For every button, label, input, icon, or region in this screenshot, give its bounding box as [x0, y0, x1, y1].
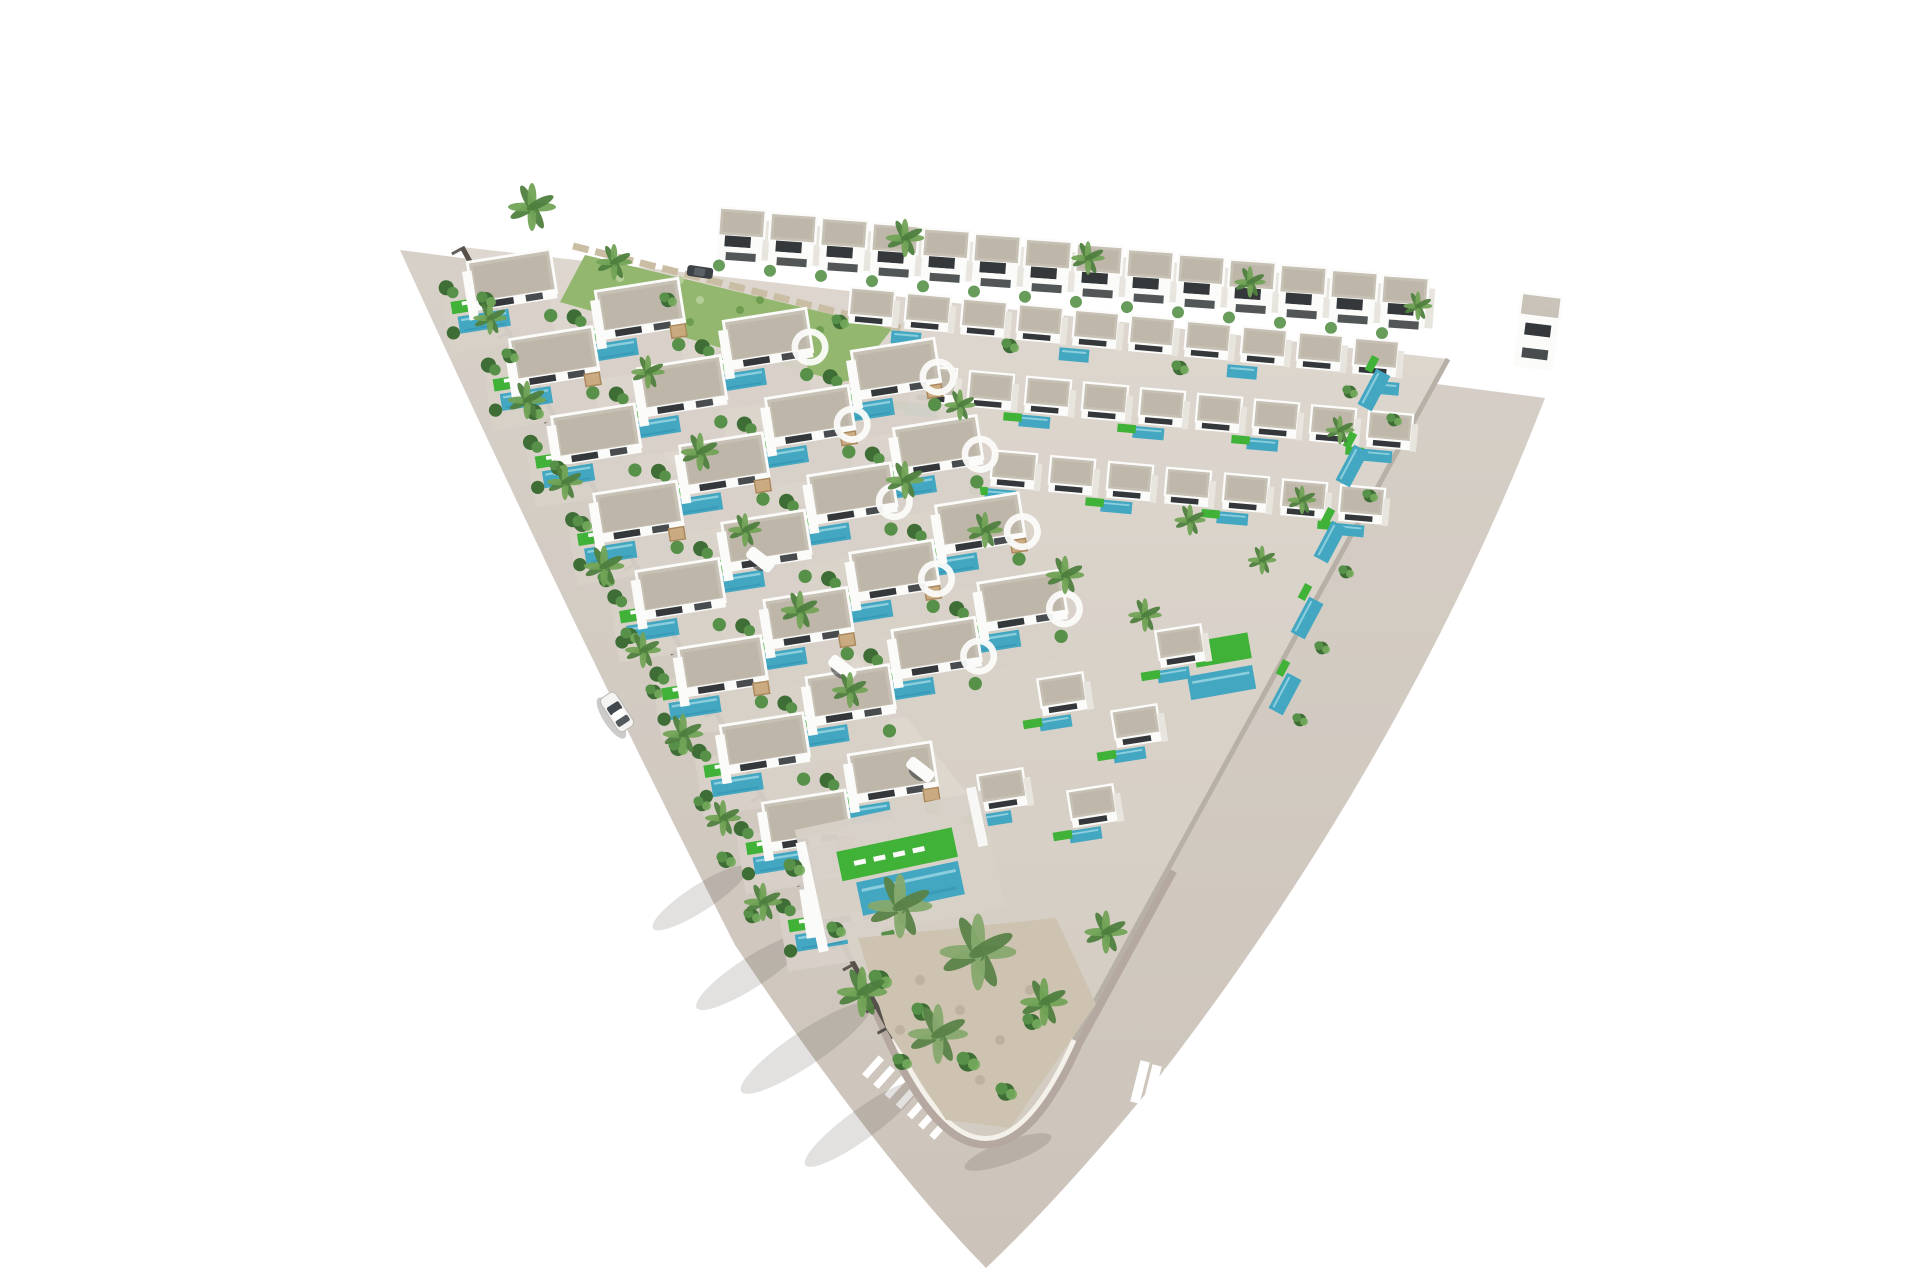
villa-shrub [1172, 306, 1185, 319]
villa-part [722, 212, 761, 235]
palm-crown [797, 607, 803, 613]
shrub-mass [501, 348, 511, 358]
garden-plant [686, 318, 694, 326]
villa-part [1189, 325, 1227, 348]
two-storey-villa [1121, 249, 1181, 317]
shrub-mass [996, 1083, 1008, 1095]
two-storey-villa [968, 233, 1028, 301]
two-storey-villa [1325, 270, 1385, 338]
villa-part [926, 232, 965, 255]
row-villa [1240, 327, 1293, 368]
shrub-mass [1370, 494, 1378, 502]
villa-shrub [917, 280, 930, 293]
gravel-patch [995, 1035, 1005, 1045]
villa-part [824, 222, 863, 245]
shrub-mass [1010, 343, 1019, 352]
shrub-mass [1300, 718, 1308, 726]
row-villa [960, 299, 1013, 340]
shrub-mass [510, 353, 519, 362]
row-villa [1164, 468, 1217, 509]
pool-part [1226, 364, 1257, 380]
garden-plant [696, 296, 704, 304]
shrub-mass [693, 796, 703, 806]
villa-shrub [815, 269, 828, 282]
villa-part [853, 291, 891, 314]
villa-part [1133, 319, 1171, 342]
villa-part [995, 454, 1033, 477]
row-villa [1128, 315, 1181, 356]
palm-crown [958, 403, 963, 408]
shrub-mass [1001, 338, 1011, 348]
two-storey-villa [1223, 259, 1283, 327]
villa-part [1029, 381, 1067, 404]
palm-crown [1188, 518, 1193, 523]
pool-part [1058, 347, 1089, 363]
shrub-mass [717, 852, 728, 863]
palm-crown [1103, 929, 1109, 935]
villa-part [1085, 497, 1104, 507]
row-villa [1184, 321, 1237, 362]
palm-crown [1338, 428, 1342, 432]
villa-part [1021, 308, 1059, 331]
villa-part [1183, 282, 1210, 295]
palm-crown [680, 731, 686, 737]
palm-crown [934, 1030, 943, 1039]
shrub-mass [902, 1059, 912, 1069]
shrub-mass [840, 319, 849, 328]
palm-crown [1041, 999, 1048, 1006]
two-storey-villa [713, 207, 773, 275]
row-villa [1195, 394, 1248, 435]
shrub-mass [477, 292, 488, 303]
shrub-mass [1180, 365, 1189, 374]
shrub-mass [1032, 1019, 1042, 1029]
villa-part [1132, 277, 1159, 290]
villa-part [909, 297, 947, 320]
palm-crown [858, 988, 865, 995]
palm-crown [611, 259, 616, 264]
villa-part [724, 235, 751, 248]
shrub-mass [621, 628, 632, 639]
site-render [0, 0, 1920, 1280]
villa-shrub [713, 259, 726, 272]
palm-crown [972, 946, 983, 957]
palm-crown [1260, 558, 1264, 562]
villa-shrub [1121, 301, 1134, 314]
palm-crown [1143, 613, 1148, 618]
villa-part [1086, 386, 1124, 409]
row-villa [848, 287, 901, 328]
shrub-mass [573, 516, 584, 527]
villa-part [1117, 423, 1136, 433]
shrub-mass [836, 927, 846, 937]
gravel-patch [955, 1005, 965, 1015]
shrub-mass [1362, 489, 1371, 498]
two-storey-villa [917, 228, 977, 296]
shrub-mass [582, 521, 592, 531]
shrub-mass [702, 801, 711, 810]
villa-part [1201, 509, 1220, 519]
palm-crown [562, 479, 567, 484]
shrub-mass [1322, 646, 1330, 654]
shrub-mass [893, 1054, 904, 1065]
shrub-mass [968, 1058, 980, 1070]
villa-shrub [1019, 290, 1032, 303]
palm-crown [1416, 304, 1420, 308]
villa-part [773, 217, 812, 240]
two-storey-villa [1376, 275, 1436, 343]
garden-plant [756, 296, 764, 304]
villa-part [965, 303, 1003, 326]
aerial-render-canvas [0, 0, 1920, 1280]
palm-crown [640, 647, 645, 652]
villa-part [1030, 267, 1057, 280]
villa-part [1283, 269, 1322, 292]
villa-part [1130, 253, 1169, 276]
shrub-mass [957, 1052, 970, 1065]
gravel-patch [915, 975, 925, 985]
car-roof [694, 267, 706, 276]
row-villa [1296, 332, 1349, 373]
gravel-patch [895, 1025, 905, 1035]
gravel-patch [975, 1075, 985, 1085]
villa-part [1077, 314, 1115, 337]
villa-part [1111, 466, 1149, 489]
shrub-mass [668, 297, 677, 306]
villa-part [1285, 293, 1312, 306]
villa-part [1028, 243, 1067, 266]
courtyard-pool [1226, 364, 1257, 380]
shrub-mass [1350, 390, 1358, 398]
villa-part [775, 241, 802, 254]
palm-crown [1300, 498, 1304, 502]
palm-crown [697, 449, 703, 455]
shrub-mass [1386, 413, 1395, 422]
palm-crown [720, 815, 725, 820]
villa-part [1334, 274, 1373, 297]
palm-crown [524, 397, 530, 403]
shrub-mass [654, 689, 663, 698]
villa-shrub [1325, 321, 1338, 334]
palm-crown [982, 527, 987, 532]
shrub-mass [831, 314, 841, 324]
villa-shrub [1274, 316, 1287, 329]
villa-part [1336, 298, 1363, 311]
shrub-mass [659, 292, 669, 302]
palm-crown [760, 899, 766, 905]
villa-part [1053, 460, 1091, 483]
palm-crown [1248, 280, 1253, 285]
shrub-mass [1342, 385, 1351, 394]
courtyard-pool [1058, 347, 1089, 363]
palm-crown [1062, 572, 1068, 578]
palm-crown [847, 687, 852, 692]
two-storey-villa [1019, 238, 1079, 306]
palm-crown [743, 528, 748, 533]
villa-shrub [1376, 327, 1389, 340]
villa-part [1257, 404, 1295, 427]
two-storey-villa [1274, 264, 1334, 332]
two-storey-villa [764, 212, 824, 280]
palm-tree [508, 183, 556, 231]
villa-part [1301, 336, 1339, 359]
shrub-mass [1023, 1014, 1034, 1025]
give-way-marking [1440, 374, 1449, 382]
villa-part [1200, 398, 1238, 421]
row-villa [1072, 310, 1125, 351]
entrance-building [1513, 293, 1562, 371]
villa-part [1181, 258, 1220, 281]
shrub-mass [784, 859, 796, 871]
shrub-mass [1292, 713, 1301, 722]
villa-part [1143, 392, 1181, 415]
villa-part [1227, 478, 1265, 501]
villa-part [977, 238, 1016, 261]
villa-part [972, 375, 1010, 398]
palm-crown [902, 235, 908, 241]
shrub-mass [1171, 360, 1181, 370]
palm-crown [902, 477, 908, 483]
row-villa [904, 293, 957, 334]
shrub-mass [1338, 565, 1347, 574]
shrub-mass [827, 922, 838, 933]
villa-part [1081, 272, 1108, 285]
palm-crown [601, 563, 607, 569]
row-villa [1048, 456, 1101, 497]
shrub-mass [1314, 641, 1323, 650]
palm-crown [488, 316, 493, 321]
palm-crown [646, 370, 651, 375]
shrub-mass [1394, 418, 1402, 426]
palm-crown [529, 204, 536, 211]
villa-part [1003, 412, 1022, 422]
villa-shrub [866, 275, 879, 288]
two-storey-villa [1172, 254, 1232, 322]
palm-crown [895, 901, 904, 910]
villa-shrub [1070, 295, 1083, 308]
villa-part [826, 246, 853, 259]
villa-shrub [968, 285, 981, 298]
garden-plant [736, 306, 744, 314]
villa-part [928, 256, 955, 269]
shrub-mass [794, 865, 805, 876]
shrub-mass [1346, 570, 1354, 578]
row-villa [1081, 382, 1134, 423]
shrub-mass [726, 857, 736, 867]
villa-shrub [764, 264, 777, 277]
villa-part [1245, 331, 1283, 354]
shrub-mass [645, 684, 655, 694]
palm-crown [1086, 256, 1091, 261]
villa-part [1231, 435, 1250, 445]
villa-shrub [1223, 311, 1236, 324]
shrub-mass [1006, 1089, 1017, 1100]
two-storey-villa [815, 218, 875, 286]
shrub-mass [752, 913, 761, 922]
row-villa [1016, 304, 1069, 345]
shrub-mass [912, 1003, 924, 1015]
villa-part [877, 251, 904, 264]
villa-part [979, 261, 1006, 274]
villa-part [1169, 472, 1207, 495]
